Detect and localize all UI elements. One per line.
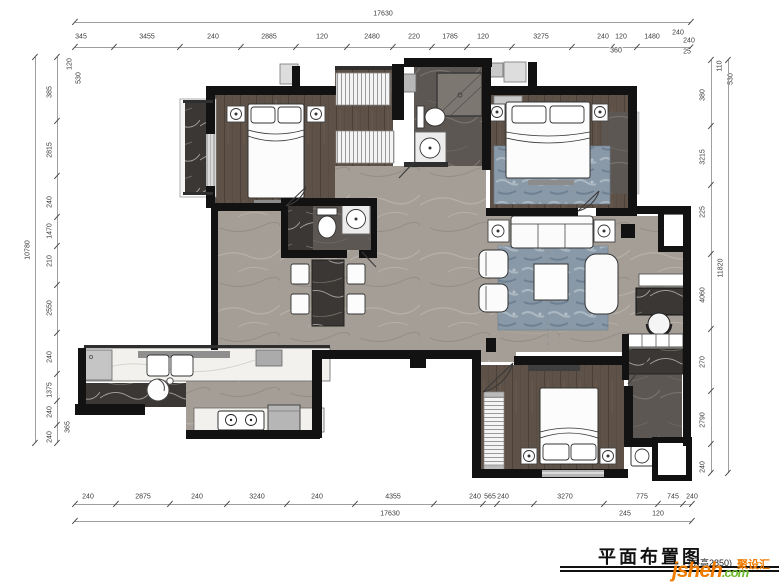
wall [658, 206, 664, 252]
pillow [571, 444, 596, 460]
sink-basin [147, 355, 169, 376]
wardrobe-hatch [336, 73, 390, 105]
bed-bench [528, 180, 574, 185]
wall-niche [662, 214, 684, 248]
balcony-ledge [181, 103, 185, 193]
wall [410, 357, 426, 368]
lamp-dot [607, 455, 610, 458]
dining-table [312, 260, 344, 326]
master-bedroom [489, 96, 608, 185]
wall-pillar [392, 64, 404, 120]
wall [628, 86, 637, 215]
sink-bowl [147, 379, 169, 401]
chaise-lounge [585, 254, 618, 314]
desk [636, 288, 684, 315]
ledge-block [504, 62, 526, 82]
wall [281, 198, 288, 258]
burner-dot [250, 419, 252, 421]
wall [486, 338, 496, 352]
dining-chair [347, 264, 365, 284]
toilet-tank [417, 106, 424, 128]
window [206, 134, 215, 186]
wall [371, 198, 377, 258]
wardrobe-hatch [336, 131, 394, 163]
wall [514, 356, 626, 365]
wall [486, 86, 637, 95]
dining-chair [291, 294, 309, 314]
toilet-tank [317, 208, 337, 215]
pillow [550, 106, 584, 123]
floor-plan-page: 1763034534552402885120248022017851203275… [0, 0, 780, 586]
wall [281, 250, 347, 258]
fridge [268, 405, 300, 432]
pillow [251, 107, 275, 123]
bathroom2 [317, 205, 370, 238]
dining-chair [291, 264, 309, 284]
pillow [543, 444, 569, 460]
lamp-dot [235, 113, 238, 116]
dining-chair [347, 294, 365, 314]
bath3-floor [628, 374, 682, 438]
basin-drain [429, 147, 432, 150]
floor-lamp [621, 224, 635, 238]
wall [211, 203, 218, 350]
wall [683, 206, 691, 446]
wall [75, 404, 145, 415]
wall [404, 58, 492, 67]
armchair [479, 284, 508, 312]
toilet-bowl [318, 216, 336, 238]
wall-thin [335, 66, 393, 70]
wall [486, 208, 578, 216]
lamp-dot [599, 111, 602, 114]
faucet-base [167, 378, 173, 384]
pillar-small [292, 66, 300, 86]
laundry-balcony-floor [84, 383, 186, 407]
lamp-dot [315, 113, 318, 116]
wardrobe-cap [484, 392, 504, 397]
desk-shelf [639, 274, 686, 286]
pillar-small [528, 62, 537, 86]
wall [320, 350, 474, 359]
wall [213, 203, 285, 211]
wall [186, 430, 320, 439]
wall-thin [183, 192, 213, 195]
kitchen-appliance [256, 350, 282, 366]
basin-drain [355, 218, 358, 221]
sink-basin [171, 355, 193, 376]
tea-cabinet [628, 334, 683, 347]
passage-floor [217, 211, 283, 348]
bath2-vanity-slab [288, 206, 313, 250]
wall [472, 350, 481, 478]
sofa [511, 216, 593, 248]
tea-counter [628, 349, 683, 374]
pillow [512, 106, 546, 123]
coffee-table [534, 264, 568, 300]
wall [206, 86, 215, 134]
wall [206, 86, 336, 95]
floor-plan-canvas [0, 0, 780, 586]
lamp-dot [603, 230, 606, 233]
wall [78, 348, 86, 412]
toilet-bowl [425, 108, 445, 126]
wall-thin [183, 100, 213, 103]
wall-thin [84, 345, 330, 348]
lamp-dot [528, 455, 531, 458]
wall [596, 208, 637, 216]
wall [312, 350, 322, 438]
bedroom3-wardrobe [484, 396, 504, 466]
burner-dot [230, 419, 232, 421]
armchair [479, 250, 508, 278]
kitchen-cabinet [84, 350, 112, 380]
wall [658, 246, 684, 252]
wall [624, 386, 633, 442]
wall [482, 58, 491, 170]
lamp-dot [496, 111, 499, 114]
pillow [278, 107, 301, 123]
lamp-dot [497, 230, 500, 233]
cooktop [218, 411, 264, 430]
